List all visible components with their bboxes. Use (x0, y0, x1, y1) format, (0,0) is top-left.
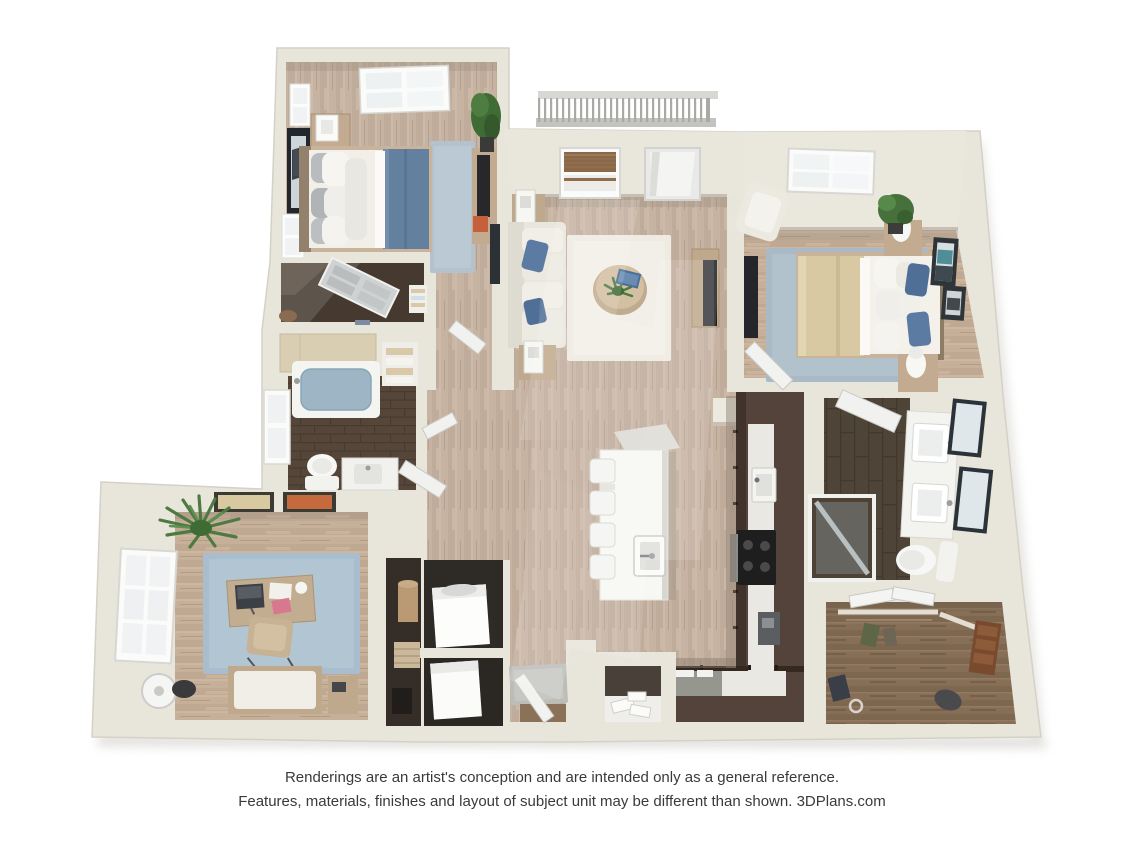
svg-text:Renderings are an artist's con: Renderings are an artist's conception an… (285, 769, 839, 786)
svg-text:Features, materials, finishes: Features, materials, finishes and layout… (238, 793, 886, 810)
